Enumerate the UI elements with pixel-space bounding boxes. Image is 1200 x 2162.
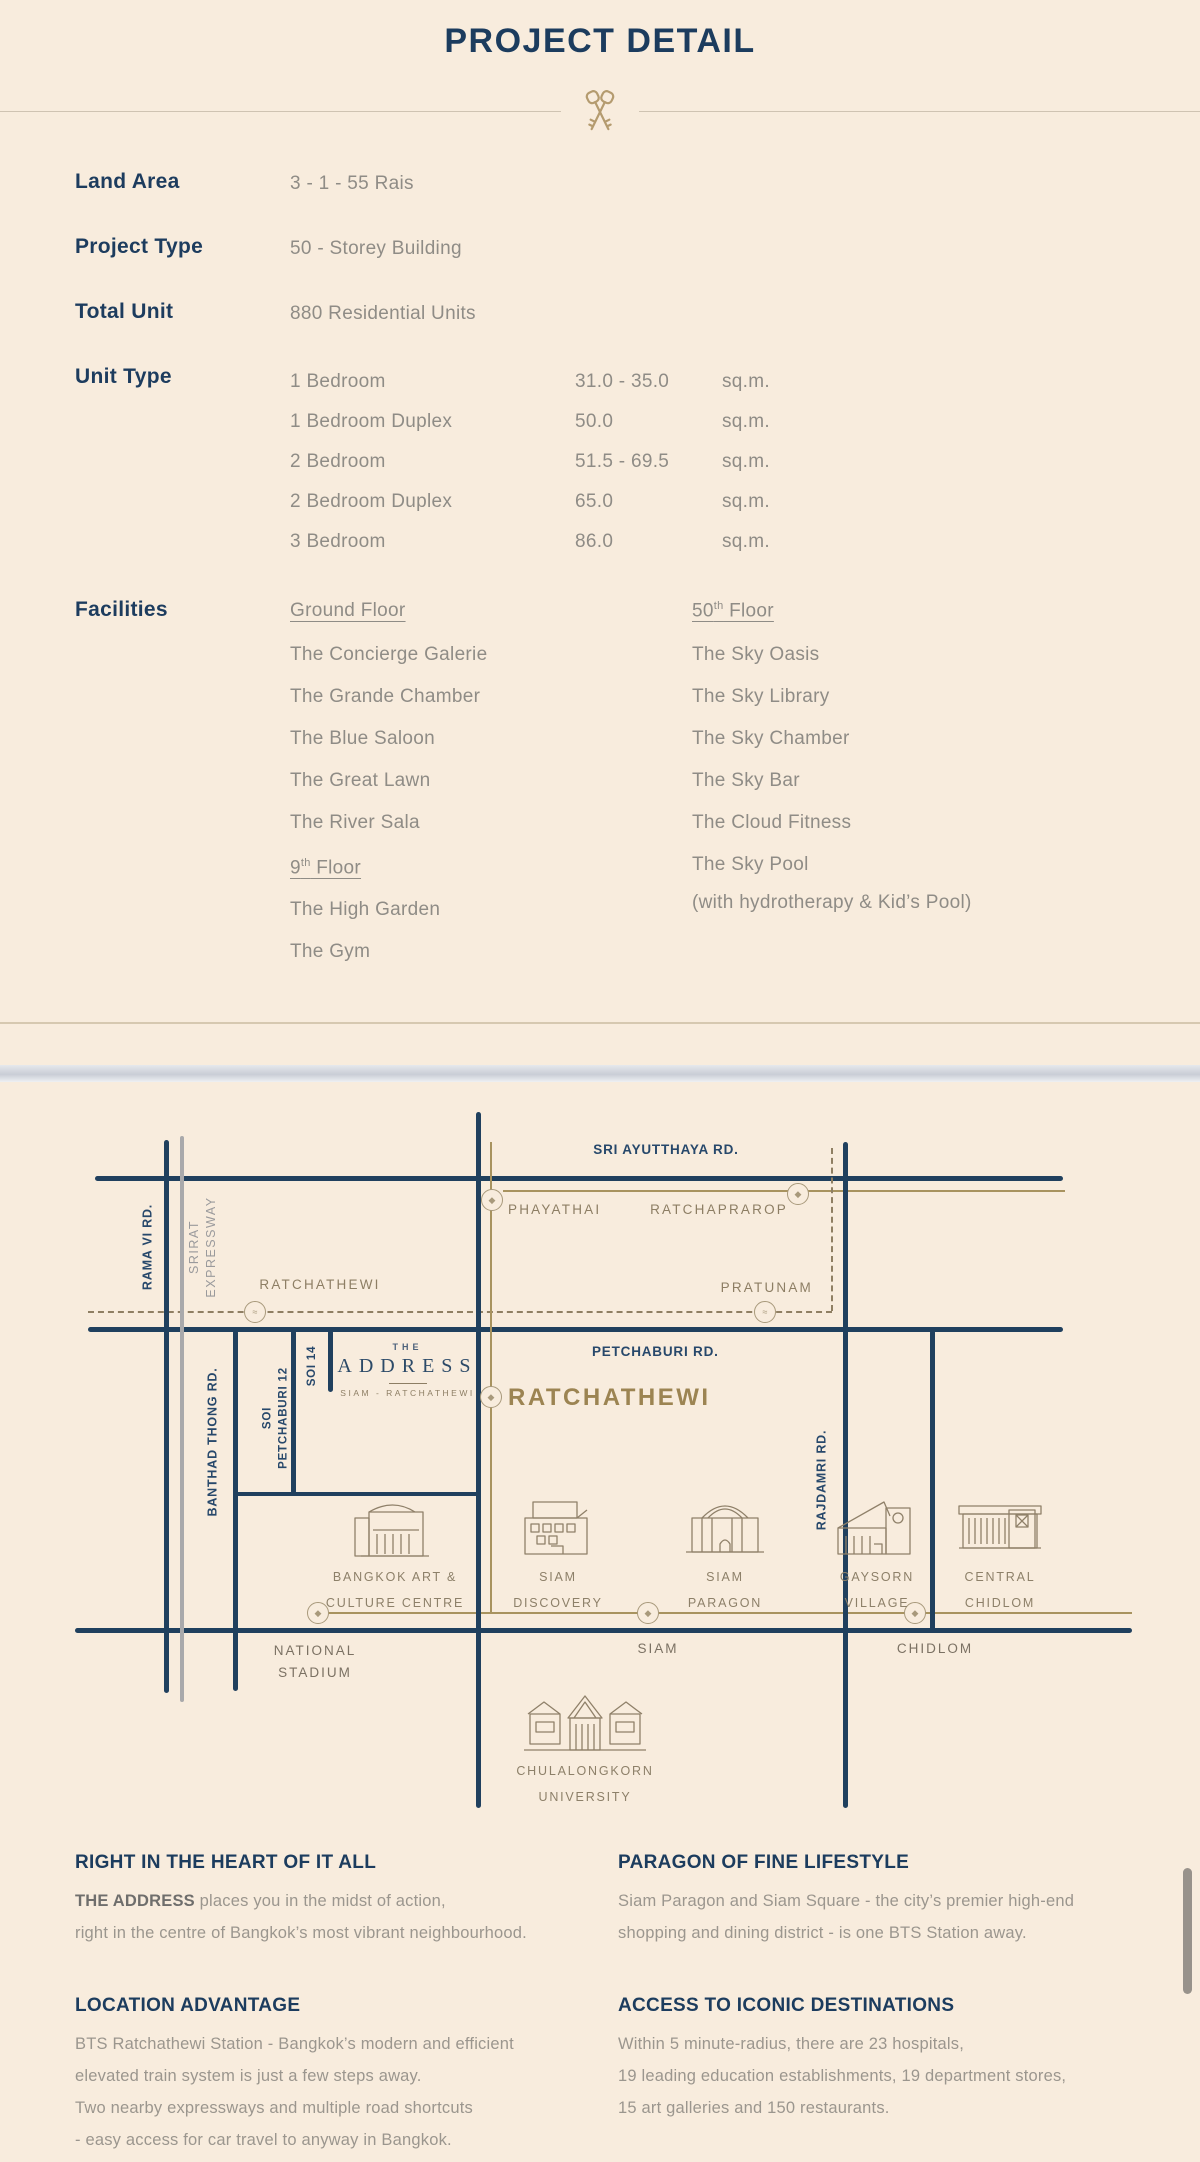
road-phayathai — [476, 1112, 481, 1808]
table-row: 3 Bedroom86.0sq.m. — [290, 531, 452, 571]
road-rajdamri — [843, 1142, 848, 1808]
pier-icon: ≈ — [754, 1301, 776, 1323]
bts-station-icon: ◆ — [637, 1602, 659, 1624]
section-body-line: shopping and dining district - is one BT… — [618, 1924, 1027, 1943]
station-label-phayathai: PHAYATHAI — [508, 1202, 601, 1217]
the-address-logo: THE ADDRESS SIAM - RATCHATHEWI — [330, 1342, 485, 1398]
separator-band — [0, 1065, 1200, 1082]
pier-icon: ≈ — [244, 1301, 266, 1323]
logo-subtitle: SIAM - RATCHATHEWI — [330, 1388, 485, 1398]
list-item: The Sky Library — [692, 686, 830, 708]
airport-link-line — [503, 1190, 1065, 1192]
list-item: The Blue Saloon — [290, 728, 435, 750]
list-item: The Sky Bar — [692, 770, 800, 792]
road-label-rama6: RAMA VI RD. — [140, 1204, 157, 1290]
road-label-banthad-thong: BANTHAD THONG RD. — [205, 1367, 222, 1516]
list-item: The Gym — [290, 941, 370, 963]
district-label-ratchathewi: RATCHATHEWI — [508, 1384, 711, 1412]
facilities-label: Facilities — [75, 598, 168, 622]
place-label-bacc: BANGKOK ART & — [333, 1570, 457, 1584]
list-item: The Sky Chamber — [692, 728, 850, 750]
road-label-rajdamri: RAJDAMRI RD. — [814, 1430, 831, 1531]
road-soi-petchaburi12 — [291, 1330, 296, 1494]
project-type-label: Project Type — [75, 235, 203, 259]
station-label-ratchathewi-pier: RATCHATHEWI — [259, 1277, 380, 1292]
station-label-ratchaprarop: RATCHAPRAROP — [628, 1202, 788, 1217]
road-label-petchaburi: PETCHABURI RD. — [592, 1344, 719, 1359]
section-body-line: THE ADDRESS places you in the midst of a… — [75, 1892, 446, 1911]
section-body-line: 19 leading education establishments, 19 … — [618, 2067, 1066, 2086]
gaysorn-village-building-icon — [830, 1492, 922, 1560]
table-row: 1 Bedroom31.0 - 35.0sq.m. — [290, 371, 452, 411]
place-label-siam-discovery: SIAM — [539, 1570, 577, 1584]
place-label-chulalongkorn: CHULALONGKORN — [516, 1764, 653, 1778]
list-item: The Sky Pool — [692, 854, 809, 876]
bacc-building-icon — [347, 1494, 443, 1560]
list-item: The Great Lawn — [290, 770, 430, 792]
srirat-expressway-line — [180, 1136, 184, 1702]
road-sri-ayutthaya — [95, 1176, 1063, 1181]
section-body-line: elevated train system is just a few step… — [75, 2067, 422, 2086]
place-label-chulalongkorn: UNIVERSITY — [538, 1790, 631, 1804]
siam-discovery-building-icon — [513, 1498, 601, 1560]
bts-silom-line — [326, 1612, 1132, 1614]
list-item: The River Sala — [290, 812, 420, 834]
place-label-siam-paragon: SIAM — [706, 1570, 744, 1584]
ground-floor-heading: Ground Floor — [290, 600, 406, 622]
place-label-gaysorn: GAYSORN — [840, 1570, 914, 1584]
page-title: PROJECT DETAIL — [0, 22, 1200, 61]
list-item-note: (with hydrotherapy & Kid’s Pool) — [692, 892, 972, 914]
section-body-line: Siam Paragon and Siam Square - the city’… — [618, 1892, 1074, 1911]
bts-sukhumvit-line — [490, 1142, 492, 1614]
siam-paragon-building-icon — [678, 1490, 772, 1560]
road-label-sri-ayutthaya: SRI AYUTTHAYA RD. — [593, 1142, 738, 1157]
section-heading-location: LOCATION ADVANTAGE — [75, 1995, 300, 2017]
central-chidlom-building-icon — [953, 1498, 1047, 1558]
ninth-floor-heading: 9th Floor — [290, 857, 361, 879]
place-label-gaysorn: VILLAGE — [845, 1596, 910, 1610]
section-body-line: Within 5 minute-radius, there are 23 hos… — [618, 2035, 964, 2054]
unit-type-label: Unit Type — [75, 365, 172, 389]
chulalongkorn-building-icon — [518, 1692, 652, 1758]
bts-station-icon: ◆ — [481, 1189, 503, 1211]
place-label-central-chidlom: CENTRAL — [965, 1570, 1036, 1584]
total-unit-value: 880 Residential Units — [290, 303, 476, 325]
station-label-national-stadium: NATIONAL STADIUM — [274, 1643, 357, 1680]
project-type-value: 50 - Storey Building — [290, 238, 462, 260]
total-unit-label: Total Unit — [75, 300, 173, 324]
logo-name: ADDRESS — [330, 1355, 485, 1378]
road-banthad-thong — [233, 1330, 238, 1691]
list-item: The Cloud Fitness — [692, 812, 851, 834]
station-label-chidlom: CHIDLOM — [897, 1641, 973, 1656]
road-label-soi14: SOI 14 — [305, 1346, 321, 1387]
crossed-keys-icon — [561, 82, 639, 142]
road-chidlom — [930, 1330, 935, 1632]
table-row: 2 Bedroom Duplex65.0sq.m. — [290, 491, 452, 531]
place-label-central-chidlom: CHIDLOM — [965, 1596, 1035, 1610]
place-label-siam-paragon: PARAGON — [688, 1596, 762, 1610]
table-row: 1 Bedroom Duplex50.0sq.m. — [290, 411, 452, 451]
section-body-line: right in the centre of Bangkok’s most vi… — [75, 1924, 527, 1943]
road-label-soi-petchaburi12: SOIPETCHABURI 12 — [260, 1367, 291, 1469]
list-item: The Sky Oasis — [692, 644, 819, 666]
logo-rule — [389, 1383, 427, 1384]
section-divider — [0, 1022, 1200, 1024]
unit-type-table: 1 Bedroom31.0 - 35.0sq.m. 1 Bedroom Dupl… — [290, 371, 452, 571]
list-item: The High Garden — [290, 899, 440, 921]
canal-route-line — [88, 1311, 832, 1313]
land-area-label: Land Area — [75, 170, 180, 194]
road-rama6 — [164, 1140, 169, 1693]
section-body-line: 15 art galleries and 150 restaurants. — [618, 2099, 890, 2118]
station-label-siam: SIAM — [637, 1641, 678, 1656]
fiftieth-floor-heading: 50th Floor — [692, 600, 774, 622]
bts-station-icon: ◆ — [787, 1183, 809, 1205]
section-body-line: Two nearby expressways and multiple road… — [75, 2099, 473, 2118]
section-body-line: BTS Ratchathewi Station - Bangkok’s mode… — [75, 2035, 514, 2054]
section-heading-paragon: PARAGON OF FINE LIFESTYLE — [618, 1852, 909, 1874]
table-row: 2 Bedroom51.5 - 69.5sq.m. — [290, 451, 452, 491]
section-heading-access: ACCESS TO ICONIC DESTINATIONS — [618, 1995, 954, 2017]
road-label-srirat-expressway: SRIRATEXPRESSWAY — [186, 1196, 220, 1297]
logo-the: THE — [330, 1342, 485, 1352]
land-area-value: 3 - 1 - 55 Rais — [290, 173, 414, 195]
section-body-line: - easy access for car travel to anyway i… — [75, 2131, 452, 2150]
canal-route-line-vertical — [831, 1148, 833, 1311]
section-heading-heart: RIGHT IN THE HEART OF IT ALL — [75, 1852, 376, 1874]
station-label-pratunam: PRATUNAM — [690, 1280, 813, 1295]
scrollbar-thumb[interactable] — [1183, 1868, 1192, 1994]
list-item: The Concierge Galerie — [290, 644, 487, 666]
place-label-bacc: CULTURE CENTRE — [326, 1596, 464, 1610]
project-detail-page: PROJECT DETAIL Land Area 3 - 1 - 55 Rais… — [0, 0, 1200, 2162]
place-label-siam-discovery: DISCOVERY — [513, 1596, 603, 1610]
list-item: The Grande Chamber — [290, 686, 480, 708]
